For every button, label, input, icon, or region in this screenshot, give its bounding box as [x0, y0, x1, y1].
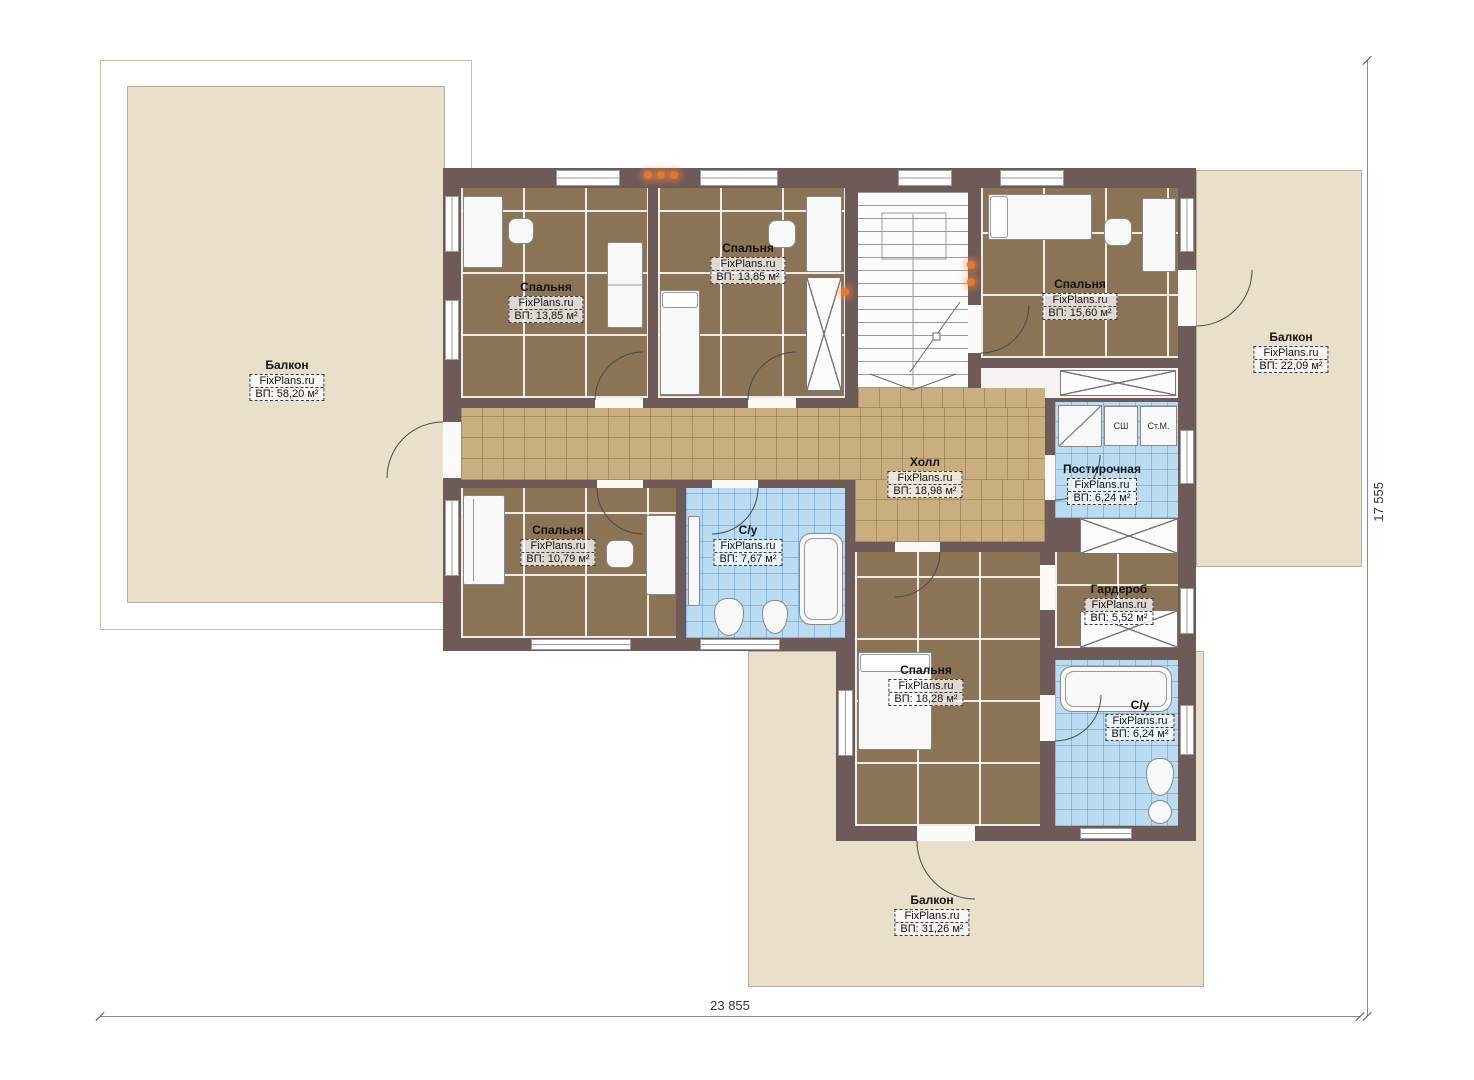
room-area: ВП: 13,85 м² [509, 310, 582, 322]
pillow [662, 292, 698, 308]
light-dot [644, 171, 652, 179]
watermark: FixPlans.ru [509, 297, 582, 310]
light-dot [967, 261, 975, 269]
window [531, 639, 631, 650]
room-info-box: FixPlans.ru ВП: 7,67 м² [713, 539, 782, 566]
staircase [858, 192, 968, 388]
door-gap-balcony-bottom [917, 826, 975, 841]
balcony-left-floor [127, 86, 445, 603]
room-area: ВП: 22,09 м² [1254, 360, 1327, 372]
door-gap-balcony-left [443, 422, 461, 478]
room-label-balcony-left: Балкон FixPlans.ru ВП: 58,20 м² [249, 358, 324, 401]
built-in-wardrobe [1080, 518, 1178, 554]
door-gap-laundry [1045, 455, 1055, 500]
light-dot [657, 171, 665, 179]
watermark: FixPlans.ru [250, 375, 323, 388]
door-gap-bathroom-2 [1040, 695, 1055, 741]
room-info-box: FixPlans.ru ВП: 18,98 м² [887, 471, 962, 498]
room-info-box: FixPlans.ru ВП: 22,09 м² [1253, 346, 1328, 373]
room-name: Спальня [1054, 277, 1106, 291]
hall-floor-landing [858, 388, 1045, 408]
watermark: FixPlans.ru [521, 540, 594, 553]
room-area: ВП: 58,20 м² [250, 388, 323, 400]
chair [1104, 218, 1132, 246]
room-label-bedroom-bottom-left: Спальня FixPlans.ru ВП: 10,79 м² [520, 523, 595, 566]
bathroom-cabinet [688, 516, 700, 606]
washer-label: Ст.М. [1147, 421, 1169, 431]
room-info-box: FixPlans.ru ВП: 31,26 м² [894, 909, 969, 936]
dimension-width-label: 23 855 [710, 998, 750, 1013]
door-gap-bedroom-top-left [595, 398, 643, 408]
room-name: Спальня [900, 663, 952, 677]
room-info-box: FixPlans.ru ВП: 58,20 м² [249, 374, 324, 401]
room-name: Балкон [265, 358, 308, 372]
dryer: СШ [1104, 406, 1138, 446]
room-area: ВП: 10,79 м² [521, 553, 594, 565]
dimension-height-label: 17 555 [1371, 482, 1386, 522]
pillow [990, 196, 1008, 238]
watermark: FixPlans.ru [889, 680, 962, 693]
room-label-bedroom-bottom: Спальня FixPlans.ru ВП: 18,28 м² [888, 663, 963, 706]
room-name: Гардероб [1091, 582, 1148, 596]
room-info-box: FixPlans.ru ВП: 5,52 м² [1084, 598, 1153, 625]
room-label-balcony-bottom: Балкон FixPlans.ru ВП: 31,26 м² [894, 893, 969, 936]
window [445, 300, 459, 360]
room-info-box: FixPlans.ru ВП: 6,24 м² [1105, 714, 1174, 741]
room-label-bedroom-top-left: Спальня FixPlans.ru ВП: 13,85 м² [508, 280, 583, 323]
washing-machine: Ст.М. [1140, 406, 1177, 446]
window [700, 170, 778, 186]
built-in-wardrobe [806, 277, 842, 391]
wardrobe-cabinet [607, 242, 643, 328]
watermark: FixPlans.ru [1106, 715, 1173, 728]
sink [1148, 800, 1172, 824]
room-area: ВП: 5,52 м² [1085, 612, 1152, 624]
window [700, 639, 780, 650]
window [1000, 170, 1064, 186]
room-name: Балкон [1269, 330, 1312, 344]
room-area: ВП: 6,24 м² [1068, 492, 1135, 504]
room-name: Спальня [532, 523, 584, 537]
watermark: FixPlans.ru [888, 472, 961, 485]
room-label-bathroom-2: С/у FixPlans.ru ВП: 6,24 м² [1105, 698, 1174, 741]
room-area: ВП: 15,60 м² [1043, 307, 1116, 319]
door-gap-bedroom-top-middle [748, 398, 796, 408]
watermark: FixPlans.ru [1068, 479, 1135, 492]
floor-plan: СШ Ст.М. [0, 0, 1474, 1080]
window [1180, 705, 1194, 755]
room-info-box: FixPlans.ru ВП: 10,79 м² [520, 539, 595, 566]
room-info-box: FixPlans.ru ВП: 13,85 м² [710, 257, 785, 284]
window [898, 170, 952, 186]
window [1180, 430, 1194, 484]
window [1080, 828, 1132, 839]
light-dot [841, 288, 849, 296]
window [556, 170, 620, 186]
door-gap-bedroom-bottom [895, 542, 940, 552]
door-gap-balcony-right [1178, 270, 1196, 326]
room-label-balcony-right: Балкон FixPlans.ru ВП: 22,09 м² [1253, 330, 1328, 373]
chair [606, 540, 634, 568]
room-area: ВП: 18,28 м² [889, 693, 962, 705]
room-name: Холл [910, 455, 940, 469]
watermark: FixPlans.ru [895, 910, 968, 923]
room-area: ВП: 7,67 м² [714, 553, 781, 565]
chair [508, 218, 534, 244]
watermark: FixPlans.ru [1254, 347, 1327, 360]
built-in-wardrobe [1060, 370, 1176, 396]
dimension-line-right [1367, 60, 1368, 1016]
room-label-bathroom-1: С/у FixPlans.ru ВП: 7,67 м² [713, 523, 782, 566]
window [1180, 198, 1194, 252]
door-gap-bedroom-top-right [968, 305, 981, 353]
watermark: FixPlans.ru [1085, 599, 1152, 612]
watermark: FixPlans.ru [711, 258, 784, 271]
room-name: Спальня [722, 241, 774, 255]
room-info-box: FixPlans.ru ВП: 13,85 м² [508, 296, 583, 323]
window [1180, 588, 1194, 634]
window [838, 690, 853, 756]
room-label-bedroom-top-right: Спальня FixPlans.ru ВП: 15,60 м² [1042, 277, 1117, 320]
door-gap-wardrobe [1040, 565, 1055, 610]
dimension-line-bottom [100, 1016, 1360, 1017]
door-gap-bedroom-bottom-left [597, 480, 643, 488]
room-label-bedroom-top-middle: Спальня FixPlans.ru ВП: 13,85 м² [710, 241, 785, 284]
room-name: Спальня [520, 280, 572, 294]
dryer-label: СШ [1114, 421, 1129, 431]
door-gap-bathroom-1 [712, 480, 758, 488]
room-name: С/у [1131, 698, 1150, 712]
bathtub [799, 533, 843, 625]
desk [463, 196, 503, 268]
room-area: ВП: 6,24 м² [1106, 728, 1173, 740]
room-name: С/у [739, 523, 758, 537]
room-info-box: FixPlans.ru ВП: 6,24 м² [1067, 478, 1136, 505]
room-name: Балкон [910, 893, 953, 907]
room-label-laundry: Постирочная FixPlans.ru ВП: 6,24 м² [1063, 462, 1141, 505]
watermark: FixPlans.ru [714, 540, 781, 553]
watermark: FixPlans.ru [1043, 294, 1116, 307]
room-info-box: FixPlans.ru ВП: 18,28 м² [888, 679, 963, 706]
desk [806, 196, 842, 272]
desk [646, 515, 676, 595]
light-dot [967, 278, 975, 286]
light-dot [670, 171, 678, 179]
window [445, 500, 459, 576]
desk [1142, 198, 1176, 272]
room-name: Постирочная [1063, 462, 1141, 476]
room-area: ВП: 13,85 м² [711, 271, 784, 283]
room-label-hall: Холл FixPlans.ru ВП: 18,98 м² [887, 455, 962, 498]
room-info-box: FixPlans.ru ВП: 15,60 м² [1042, 293, 1117, 320]
room-label-wardrobe: Гардероб FixPlans.ru ВП: 5,52 м² [1084, 582, 1153, 625]
room-area: ВП: 18,98 м² [888, 485, 961, 497]
window [445, 196, 459, 252]
room-area: ВП: 31,26 м² [895, 923, 968, 935]
sofa [463, 495, 505, 585]
laundry-sink [1058, 405, 1102, 447]
